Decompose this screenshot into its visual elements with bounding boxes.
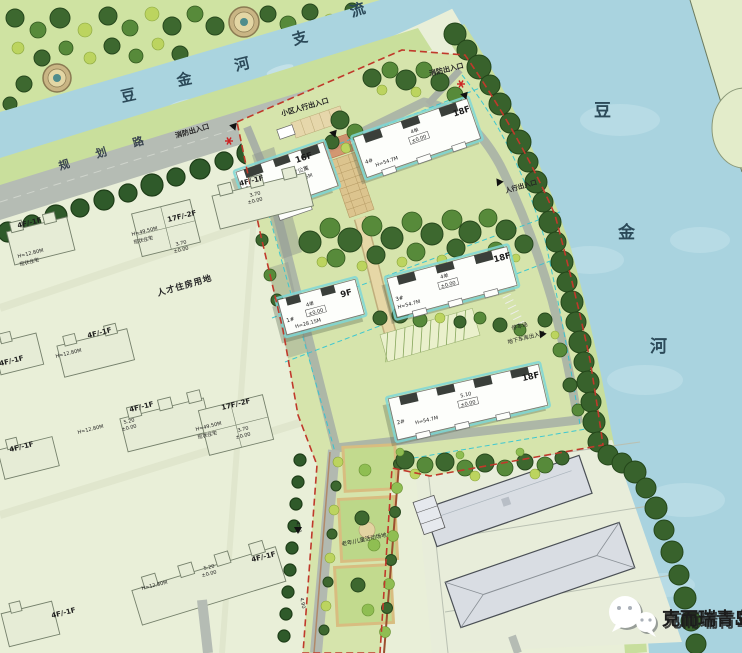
watermark-text: 克而瑞青岛 — [662, 608, 742, 630]
river-char: 豆 — [594, 101, 611, 121]
site-plan-screenshot: 豆 金 河 支 流 规 划 路 豆 金 河 — [0, 0, 742, 653]
river-char: 金 — [617, 222, 636, 243]
site-plan-map: 豆 金 河 支 流 规 划 路 豆 金 河 — [0, 0, 742, 653]
park-plaza-2 — [229, 7, 259, 37]
river-char: 河 — [650, 337, 667, 357]
park-plaza-1 — [43, 64, 71, 92]
